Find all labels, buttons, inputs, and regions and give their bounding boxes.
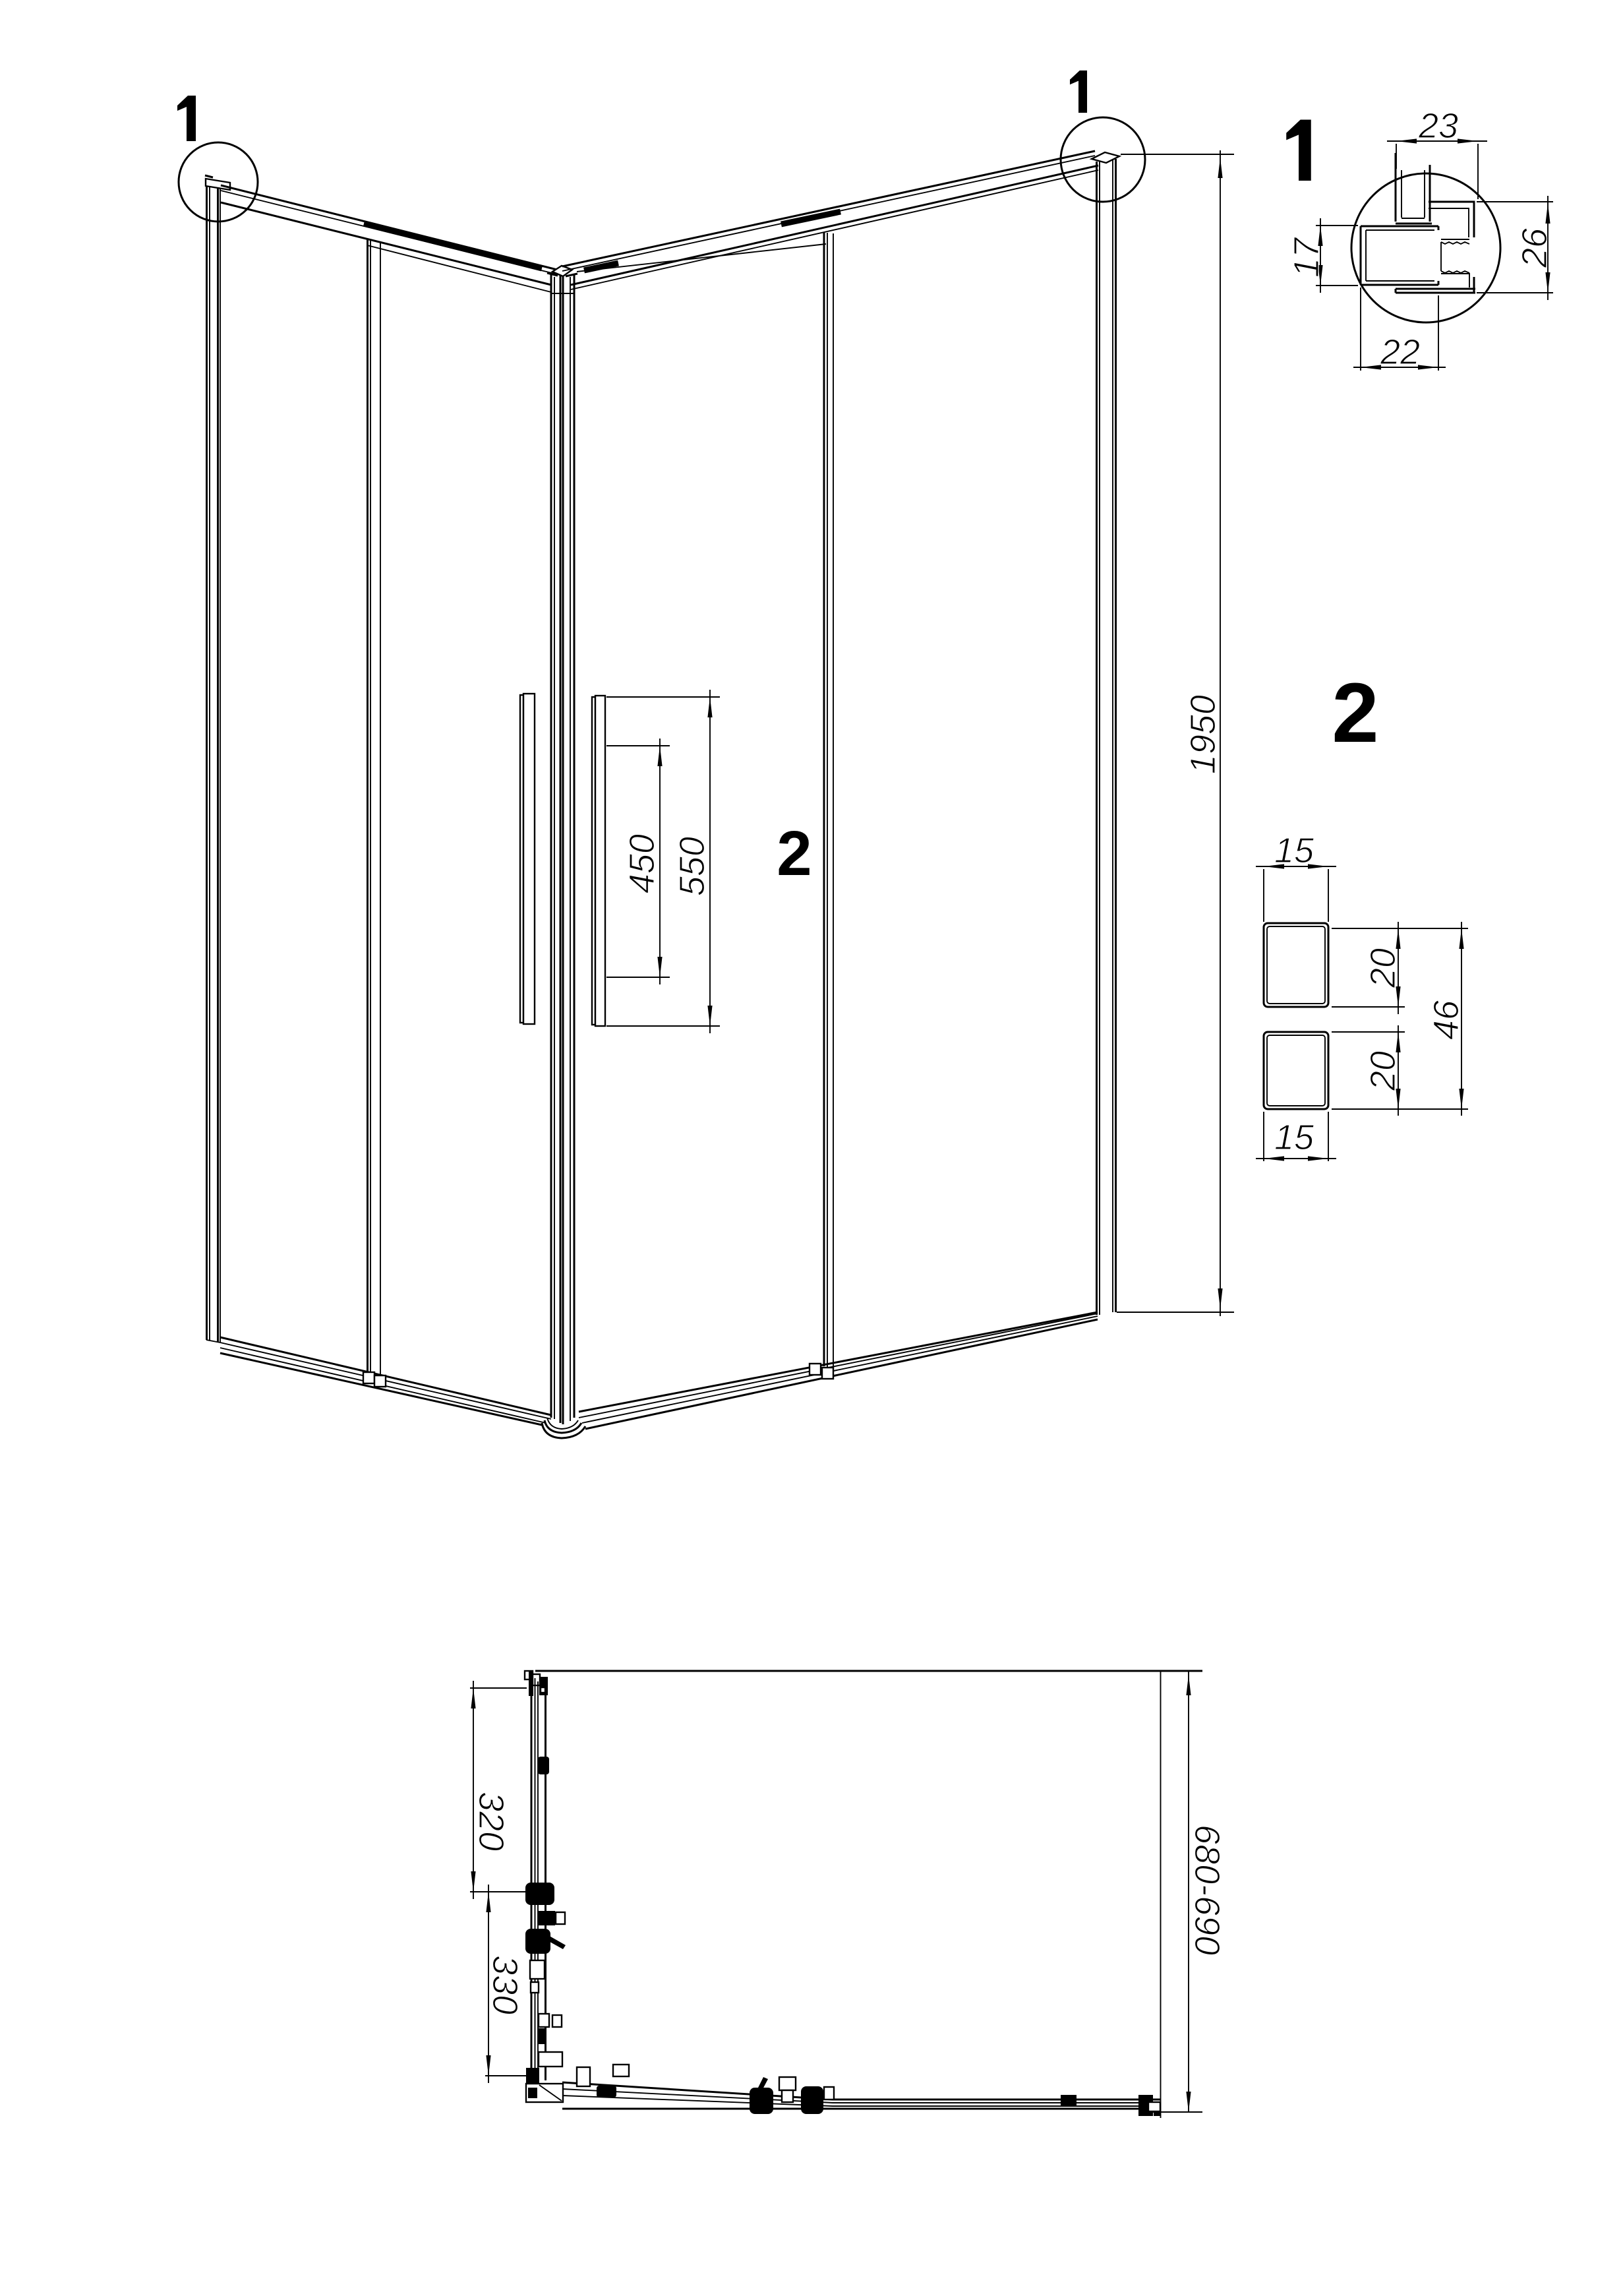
svg-text:320: 320: [471, 1792, 511, 1851]
svg-text:15: 15: [1274, 831, 1314, 870]
svg-text:550: 550: [672, 837, 712, 896]
svg-text:22: 22: [1380, 332, 1420, 372]
svg-text:680-690: 680-690: [1187, 1825, 1227, 1955]
svg-text:330: 330: [485, 1955, 525, 2014]
svg-text:20: 20: [1363, 1051, 1403, 1091]
svg-text:23: 23: [1418, 106, 1458, 146]
svg-text:2: 2: [777, 818, 811, 889]
svg-text:450: 450: [622, 834, 662, 893]
svg-text:26: 26: [1515, 227, 1554, 268]
svg-text:1950: 1950: [1183, 695, 1223, 774]
svg-text:2: 2: [1332, 666, 1378, 760]
svg-text:17: 17: [1287, 237, 1326, 278]
svg-text:46: 46: [1427, 1000, 1466, 1040]
svg-text:15: 15: [1274, 1118, 1314, 1157]
svg-text:20: 20: [1363, 948, 1403, 988]
